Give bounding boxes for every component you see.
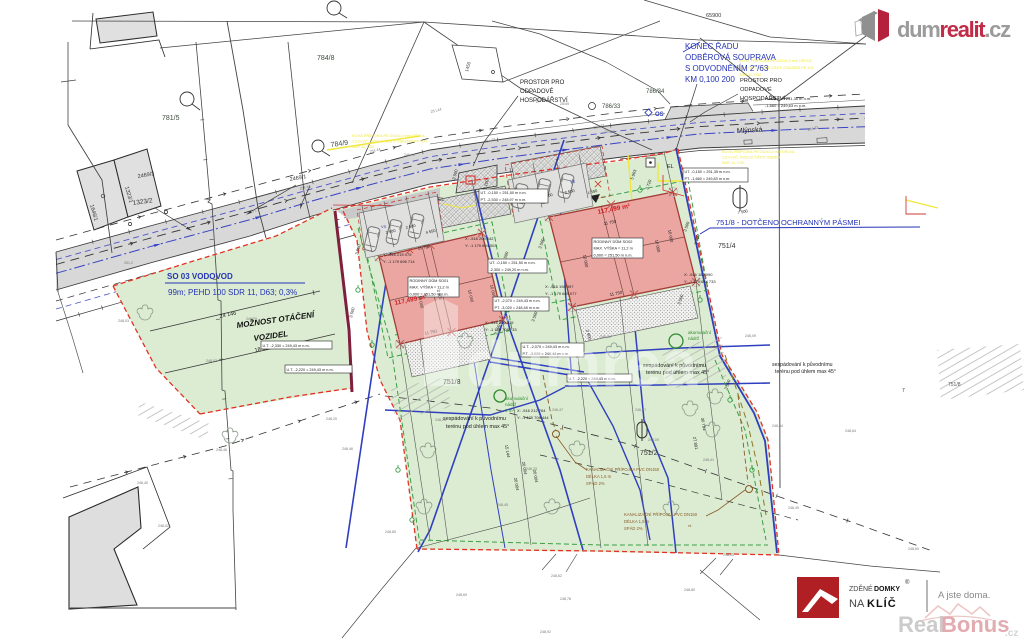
svg-text:ODPADOVÉ: ODPADOVÉ	[520, 88, 554, 95]
svg-text:HOSPODÁŘSTVÍ: HOSPODÁŘSTVÍ	[740, 94, 786, 102]
svg-text:X: -516 198 397: X: -516 198 397	[545, 284, 574, 289]
svg-text:784/8: 784/8	[317, 55, 335, 62]
svg-text:ZDĚNÉ: ZDĚNÉ	[849, 584, 873, 593]
svg-text:246,09: 246,09	[745, 334, 756, 338]
svg-text:65900: 65900	[706, 13, 721, 19]
svg-text:UT. -0,150 = 251,35 m n.m.: UT. -0,150 = 251,35 m n.m.	[685, 170, 731, 174]
svg-text:SPÁD 2%: SPÁD 2%	[624, 526, 643, 531]
svg-text:RODINNÝ DŮM SO01: RODINNÝ DŮM SO01	[410, 278, 449, 283]
svg-text:S ODVODNĚNÍM 2"/63: S ODVODNĚNÍM 2"/63	[685, 64, 769, 73]
svg-text:PT. -3,020 = 248,48 m n.m.: PT. -3,020 = 248,48 m n.m.	[495, 306, 541, 310]
svg-text:DÉLKA 1,5 m: DÉLKA 1,5 m	[624, 519, 650, 524]
svg-text:X: -516 183 090: X: -516 183 090	[684, 272, 713, 277]
svg-text:MAX. VÝŠKA = 11,2 m: MAX. VÝŠKA = 11,2 m	[410, 285, 449, 290]
svg-text:0,000 = 251,50 m n.m.: 0,000 = 251,50 m n.m.	[594, 252, 633, 257]
svg-text:rš: rš	[712, 344, 715, 349]
svg-text:Y: -1 179 708 444: Y: -1 179 708 444	[517, 415, 549, 420]
svg-text:®: ®	[905, 579, 910, 586]
svg-text:1,5 m VČ. SVISLÉ ČÁSTI ODBĚR: 1,5 m VČ. SVISLÉ ČÁSTI ODBĚR	[722, 155, 780, 160]
svg-text:RODINNÝ DŮM SO02: RODINNÝ DŮM SO02	[594, 239, 633, 244]
svg-text:EL: EL	[438, 197, 444, 203]
svg-text:terénu pod úhlem max 45°: terénu pod úhlem max 45°	[446, 424, 509, 430]
svg-text:Y: -1 179 689 077: Y: -1 179 689 077	[545, 291, 577, 296]
svg-text:251,2: 251,2	[124, 261, 133, 265]
svg-text:X: -516 209 642: X: -516 209 642	[465, 236, 494, 241]
svg-text:KANALIZAČNÍ PŘÍPOJKA PVC DN150: KANALIZAČNÍ PŘÍPOJKA PVC DN150	[586, 467, 660, 472]
svg-text:.cz: .cz	[1005, 628, 1018, 639]
svg-text:OS: OS	[655, 112, 664, 118]
svg-text:Bonus: Bonus	[941, 612, 1009, 637]
svg-text:248,49: 248,49	[788, 506, 799, 510]
svg-text:248,33: 248,33	[526, 467, 537, 471]
svg-text:rš: rš	[755, 489, 758, 494]
svg-text:248,02: 248,02	[158, 524, 169, 528]
svg-text:248,69: 248,69	[908, 547, 919, 551]
svg-text:ODPADOVÉ: ODPADOVÉ	[740, 86, 772, 93]
svg-text:248,26: 248,26	[435, 418, 446, 422]
svg-text:248,09: 248,09	[648, 438, 659, 442]
svg-text:NA: NA	[849, 598, 865, 610]
svg-text:HOSPODÁŘSTVÍ: HOSPODÁŘSTVÍ	[520, 96, 568, 104]
svg-text:SPÁD 2%: SPÁD 2%	[586, 481, 605, 486]
svg-text:A jste doma.: A jste doma.	[938, 590, 990, 601]
svg-text:248,41: 248,41	[703, 458, 714, 462]
svg-text:248,64: 248,64	[772, 424, 783, 428]
svg-text:U.T. -2,330 = 249,43 m n.m.: U.T. -2,330 = 249,43 m n.m.	[263, 344, 310, 348]
svg-text:X: -516 215 075: X: -516 215 075	[383, 252, 412, 257]
svg-text:nádrž: nádrž	[505, 402, 517, 407]
svg-text:751/2: 751/2	[640, 450, 658, 457]
svg-text:248,64: 248,64	[845, 429, 856, 433]
svg-text:2 m³: 2 m³	[505, 408, 515, 413]
svg-text:99m; PEHD 100 SDR 11, D63; 0,3: 99m; PEHD 100 SDR 11, D63; 0,3%	[168, 288, 297, 297]
svg-text:VS: VS	[570, 179, 576, 184]
svg-text:-1,660 = 249,63 m n.m.: -1,660 = 249,63 m n.m.	[765, 103, 806, 108]
svg-text:751/8 - DOTČENO OCHRANNÝM PÁSM: 751/8 - DOTČENO OCHRANNÝM PÁSMEI	[716, 218, 861, 227]
svg-text:246,1?: 246,1?	[635, 408, 646, 412]
svg-text:PT. -2,530 = 248,97 m n.m.: PT. -2,530 = 248,97 m n.m.	[481, 198, 527, 202]
svg-text:781/5: 781/5	[162, 115, 180, 122]
svg-text:DOMKY: DOMKY	[874, 586, 900, 593]
svg-text:246,47: 246,47	[552, 408, 563, 412]
svg-text:751/4: 751/4	[718, 243, 736, 250]
svg-text:dumrea: dumrea	[466, 328, 698, 400]
svg-text:terénu pod úhlem max 45°: terénu pod úhlem max 45°	[775, 369, 836, 375]
svg-text:786/34: 786/34	[646, 89, 665, 95]
svg-text:248,92: 248,92	[540, 630, 551, 634]
svg-text:SO 03 VODOVOD: SO 03 VODOVOD	[167, 272, 233, 281]
svg-text:rš: rš	[560, 426, 563, 431]
svg-text:248,44: 248,44	[404, 153, 415, 157]
svg-text:UT. -2,070 = 249,43 m n.m.: UT. -2,070 = 249,43 m n.m.	[495, 299, 541, 303]
svg-text:248,79: 248,79	[246, 317, 257, 321]
svg-text:248,78: 248,78	[560, 597, 571, 601]
svg-text:248,45: 248,45	[723, 553, 734, 557]
svg-text:KM 0,100 200: KM 0,100 200	[685, 75, 735, 84]
svg-text:NOVÁ PŘÍPOJKA PE D32x3,0 mm DÉ: NOVÁ PŘÍPOJKA PE D32x3,0 mm DÉLKA	[722, 149, 795, 154]
svg-text:ODBĚROVÁ SOUPRAVA: ODBĚROVÁ SOUPRAVA	[685, 53, 777, 62]
svg-text:sespádování k původnímu: sespádování k původnímu	[772, 361, 833, 368]
svg-text:248,40: 248,40	[137, 481, 148, 485]
svg-text:X: -516 206 335: X: -516 206 335	[485, 320, 514, 325]
svg-text:sespádování k původnímu: sespádování k původnímu	[443, 415, 506, 422]
svg-text:Y: -1 179 684 733: Y: -1 179 684 733	[684, 279, 716, 284]
svg-text:246,46: 246,46	[342, 447, 353, 451]
svg-text:PT. -1,660 = 249,83 m n.m.: PT. -1,660 = 249,83 m n.m.	[685, 177, 731, 181]
svg-text:PROSTOR PRO: PROSTOR PRO	[520, 80, 565, 86]
svg-text:U.T. -2,220 = 249,43 m n.m.: U.T. -2,220 = 249,43 m n.m.	[287, 368, 334, 372]
svg-text:KLÍČ: KLÍČ	[867, 597, 897, 610]
svg-text:Y: -1 179 694 003: Y: -1 179 694 003	[465, 243, 497, 248]
svg-text:248,45: 248,45	[497, 503, 508, 507]
svg-text:-2,300 = 249,20 m n.m.: -2,300 = 249,20 m n.m.	[490, 268, 529, 272]
svg-text:248,20: 248,20	[326, 417, 337, 421]
svg-text:SDR 11, D32: SDR 11, D32	[739, 73, 761, 77]
svg-text:7: 7	[902, 388, 905, 394]
svg-text:248,80: 248,80	[684, 588, 695, 592]
svg-text:DÉLKA 1,5 m: DÉLKA 1,5 m	[586, 474, 612, 479]
svg-text:751/8: 751/8	[948, 382, 961, 388]
svg-text:rš: rš	[688, 523, 691, 528]
svg-text:X: -516 212 764: X: -516 212 764	[517, 408, 546, 413]
svg-text:UT. -0,150 = 251,50 m n.m.: UT. -0,150 = 251,50 m n.m.	[490, 261, 536, 265]
svg-text:SDR 11, D32: SDR 11, D32	[722, 161, 744, 165]
svg-text:254,33: 254,33	[604, 130, 615, 134]
svg-text:PROSTOR PRO: PROSTOR PRO	[740, 78, 783, 84]
svg-text:786/33: 786/33	[602, 104, 621, 110]
svg-text:VS: VS	[381, 224, 387, 229]
svg-text:Real: Real	[898, 612, 944, 637]
svg-text:248,03: 248,03	[118, 319, 129, 323]
svg-text:248,46: 248,46	[216, 448, 227, 452]
svg-text:dumrealit.cz: dumrealit.cz	[897, 17, 1011, 42]
svg-text:KANALIZAČNÍ PŘÍPOJKA PVC DN150: KANALIZAČNÍ PŘÍPOJKA PVC DN150	[624, 512, 698, 517]
svg-text:248,03: 248,03	[206, 359, 217, 363]
svg-text:248,80: 248,80	[385, 530, 396, 534]
svg-text:Y: -1 179 696 714: Y: -1 179 696 714	[383, 259, 415, 264]
svg-text:MAX. VÝŠKA = 11,2 m: MAX. VÝŠKA = 11,2 m	[594, 246, 633, 251]
svg-text:248,69: 248,69	[456, 593, 467, 597]
svg-text:UT. -0,150 = 251,50 m n.m.: UT. -0,150 = 251,50 m n.m.	[481, 191, 527, 195]
svg-text:EL: EL	[667, 164, 674, 170]
svg-text:248,62: 248,62	[551, 574, 562, 578]
svg-text:Mlýnská: Mlýnská	[737, 127, 763, 135]
